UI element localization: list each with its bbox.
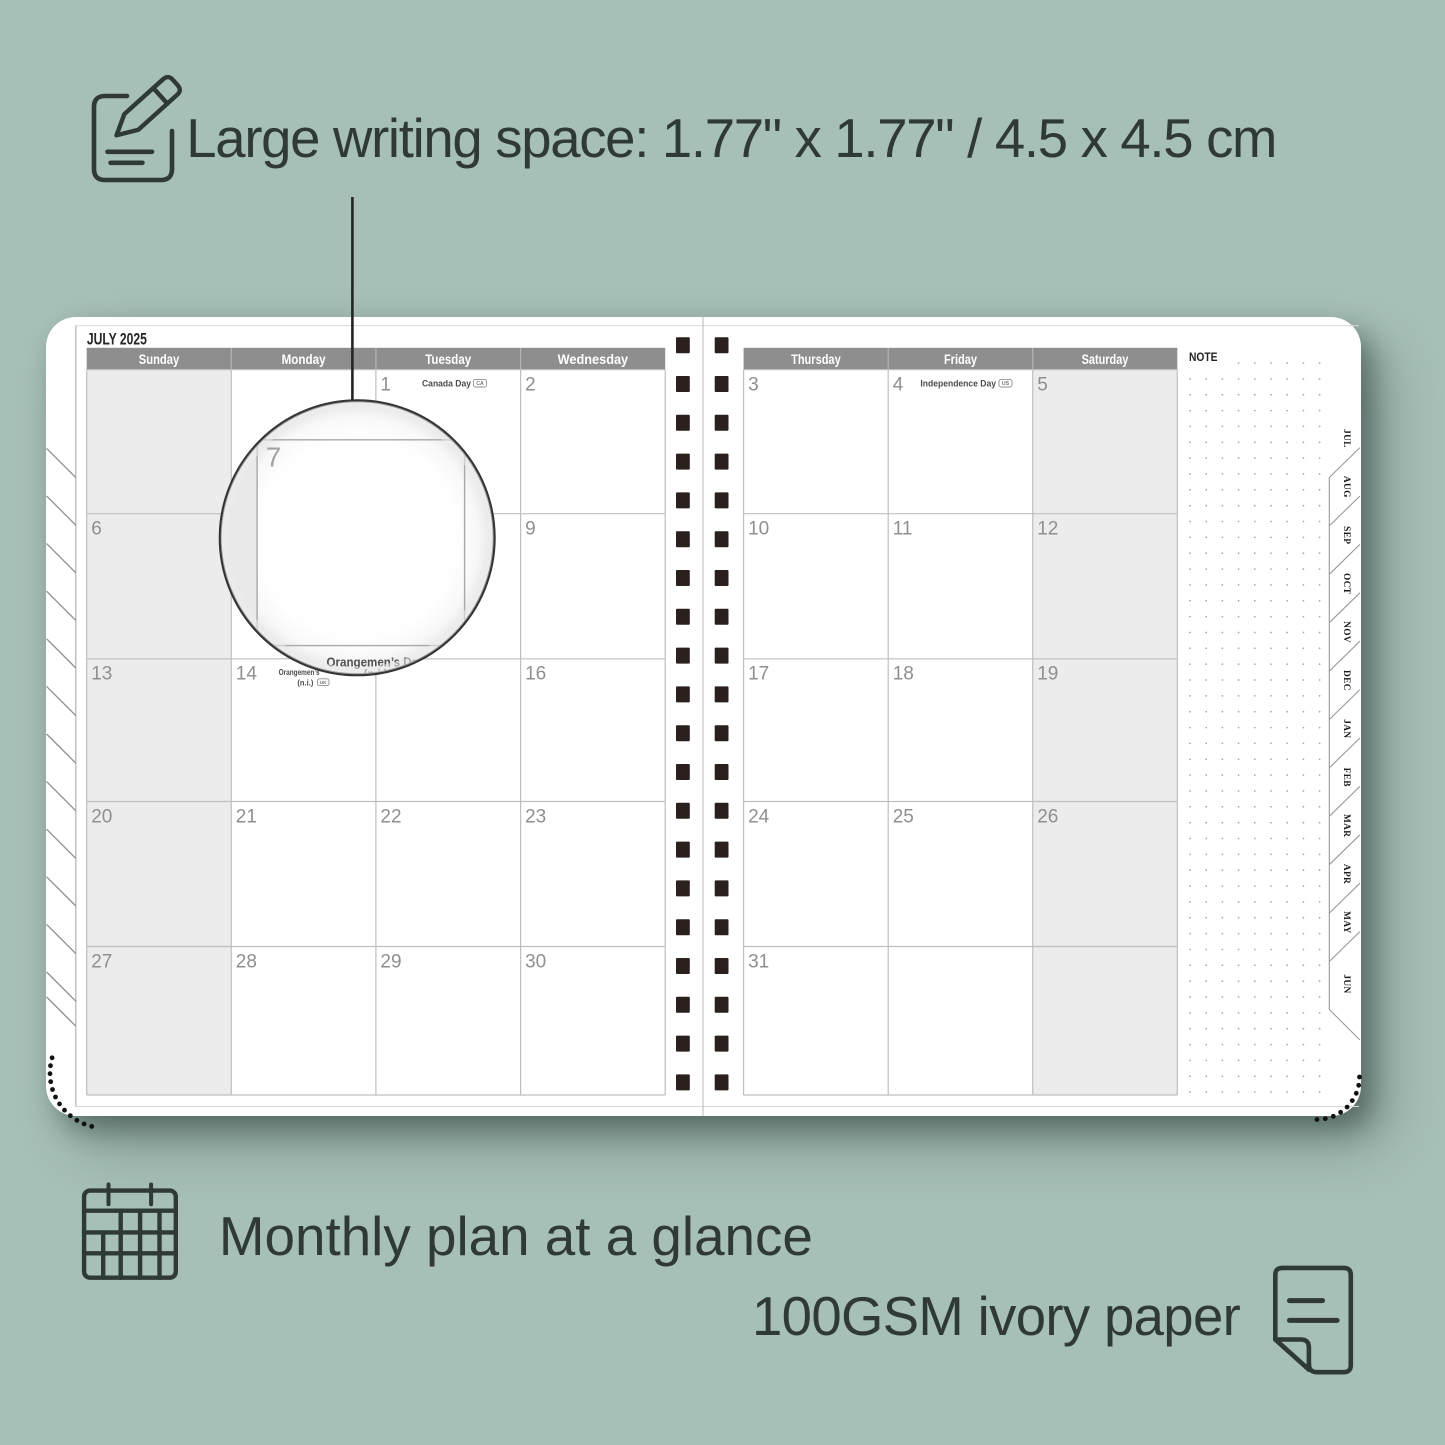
svg-text:18: 18 [893, 664, 914, 685]
svg-text:DEC: DEC [1341, 670, 1351, 691]
svg-text:20: 20 [91, 806, 112, 827]
svg-text:MAR: MAR [1341, 814, 1351, 837]
svg-text:Monday: Monday [282, 352, 326, 367]
svg-text:13: 13 [91, 664, 112, 685]
svg-text:US: US [1002, 381, 1010, 387]
svg-text:16: 16 [525, 664, 546, 685]
svg-text:UK: UK [320, 680, 327, 686]
svg-text:6: 6 [91, 519, 102, 540]
svg-text:Tuesday: Tuesday [425, 352, 471, 367]
svg-text:NOV: NOV [1341, 621, 1351, 643]
svg-text:Saturday: Saturday [1082, 352, 1129, 367]
svg-text:10: 10 [748, 519, 769, 540]
svg-text:4: 4 [893, 374, 904, 395]
svg-text:23: 23 [525, 806, 546, 827]
svg-text:7: 7 [266, 441, 281, 472]
svg-text:12: 12 [1037, 519, 1058, 540]
svg-text:Sunday: Sunday [139, 352, 180, 367]
svg-text:1: 1 [380, 374, 391, 395]
svg-text:SEP: SEP [1341, 526, 1351, 544]
svg-text:22: 22 [380, 806, 401, 827]
svg-text:Wednesday: Wednesday [558, 352, 629, 367]
svg-text:(n.i.): (n.i.) [297, 678, 313, 687]
svg-text:APR: APR [1341, 864, 1351, 884]
svg-text:JULY 2025: JULY 2025 [87, 330, 147, 348]
svg-text:14: 14 [236, 664, 258, 685]
svg-text:JAN: JAN [1341, 719, 1351, 738]
svg-text:AUG: AUG [1341, 476, 1351, 498]
svg-text:28: 28 [236, 951, 257, 972]
svg-text:3: 3 [748, 374, 759, 395]
svg-text:JUN: JUN [1341, 974, 1351, 993]
svg-text:21: 21 [236, 806, 257, 827]
svg-text:27: 27 [91, 951, 112, 972]
svg-text:5: 5 [1037, 374, 1048, 395]
svg-text:26: 26 [1037, 806, 1058, 827]
svg-text:17: 17 [748, 664, 769, 685]
svg-text:CA: CA [476, 381, 484, 387]
svg-text:29: 29 [380, 951, 401, 972]
svg-text:24: 24 [748, 806, 770, 827]
svg-text:Independence Day: Independence Day [920, 379, 996, 389]
svg-text:MAY: MAY [1341, 911, 1351, 933]
svg-text:Orangemen’s: Orangemen’s [279, 668, 320, 677]
svg-text:11: 11 [893, 519, 913, 540]
svg-text:Canada Day: Canada Day [422, 378, 471, 388]
svg-text:Friday: Friday [944, 352, 977, 367]
svg-text:JUL: JUL [1341, 429, 1351, 448]
svg-text:2: 2 [525, 374, 536, 395]
svg-text:FEB: FEB [1341, 768, 1351, 787]
svg-text:OCT: OCT [1341, 573, 1351, 595]
svg-text:31: 31 [748, 951, 769, 972]
svg-text:NOTE: NOTE [1189, 350, 1218, 364]
svg-text:19: 19 [1037, 664, 1058, 685]
svg-text:Thursday: Thursday [791, 352, 841, 367]
svg-text:25: 25 [893, 806, 914, 827]
svg-text:30: 30 [525, 951, 546, 972]
svg-text:9: 9 [525, 519, 536, 540]
